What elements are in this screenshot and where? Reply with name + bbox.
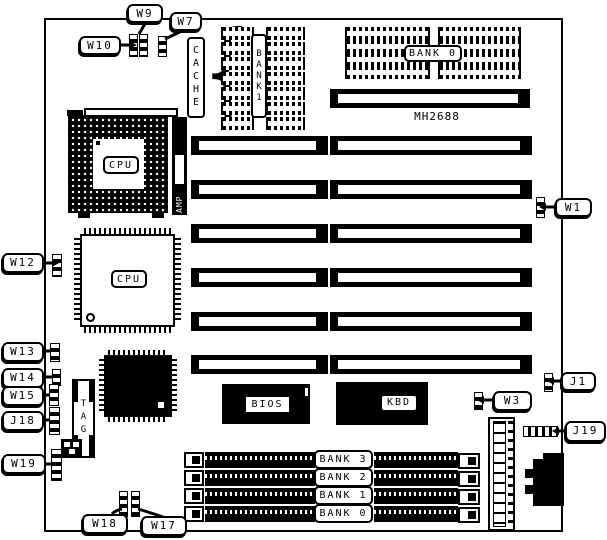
kbd-chip: KBD: [336, 382, 428, 425]
header-cell: [73, 442, 79, 447]
jumper-w3: [474, 392, 483, 410]
simm-slot-bar: [205, 506, 315, 522]
qfp-pins-bottom: [84, 327, 171, 333]
header-cell: [69, 449, 75, 454]
simm-clip: [184, 506, 204, 522]
jumper-w1: [536, 197, 545, 218]
simm-slot-bar: [374, 452, 458, 468]
pga-foot: [152, 213, 164, 218]
chipset-pins-right: [172, 359, 177, 413]
isa-slot: [330, 180, 532, 199]
simm-slot-bar: [205, 488, 315, 504]
simm-bank-label: BANK 1: [314, 486, 373, 505]
chipset-pin1-mark: [158, 402, 164, 408]
cache-bank1-label: BANK1: [251, 34, 267, 118]
simm-slot-bar: [205, 470, 315, 486]
dram-chip: [438, 27, 521, 40]
isa-slot: [330, 89, 530, 108]
jumper-w9-w10-a: [129, 34, 138, 57]
dram-chip: [345, 27, 430, 40]
power-pin-column: [508, 421, 513, 527]
kbd-label: KBD: [381, 395, 417, 411]
dram-chip: [438, 66, 521, 79]
dram-chip: [345, 66, 430, 79]
cache-chip: [266, 117, 305, 130]
power-connector: [488, 417, 515, 531]
callout-w13: W13: [2, 342, 44, 362]
isa-slot: [191, 268, 328, 287]
isa-slot: [330, 224, 532, 243]
din-keyboard-tab: [525, 469, 533, 478]
cache-chip: [266, 72, 305, 85]
jumper-w12: [52, 254, 62, 277]
pga-foot: [78, 213, 90, 218]
amp-connector: AMP: [172, 117, 187, 215]
simm-slot-bar: [205, 452, 315, 468]
isa-slot: [330, 268, 532, 287]
simm-clip: [184, 470, 204, 486]
cache-chip: [266, 57, 305, 70]
qfp-pin1-circle: [86, 313, 95, 322]
cpu-socket-label: CPU: [103, 156, 139, 174]
callout-w17: W17: [141, 516, 187, 536]
cpu-qfp-label: CPU: [111, 270, 147, 288]
callout-j18: J18: [2, 411, 44, 431]
bios-label: BIOS: [246, 397, 289, 412]
din-keyboard-tab: [525, 485, 533, 494]
simm-clip: [458, 471, 480, 487]
cache-chip: [266, 87, 305, 100]
callout-w14: W14: [2, 368, 44, 388]
simm-bank-label: BANK 2: [314, 468, 373, 487]
cache-chip: [221, 117, 254, 130]
isa-slot: [191, 136, 328, 155]
cache-brace: {: [203, 16, 220, 128]
cache-chip: [266, 42, 305, 55]
callout-w3: W3: [493, 391, 532, 411]
jumper-w9-w10-b: [139, 34, 148, 57]
cache-chip: [266, 27, 305, 40]
isa-slot: [191, 312, 328, 331]
callout-w10: W10: [79, 36, 121, 55]
cache-chip: [266, 102, 305, 115]
isa-slot: [191, 355, 328, 374]
jumper-j1: [544, 373, 553, 392]
callout-w18: W18: [82, 514, 128, 534]
isa-slot: [330, 355, 532, 374]
jumper-w13: [50, 343, 60, 362]
chipset-qfp: [104, 355, 172, 417]
cache-chip: [221, 42, 254, 55]
jumper-w7: [158, 36, 167, 57]
cache-chip: [221, 87, 254, 100]
motherboard-diagram: CACHE { BANK1 BANK 0 MH2688 CPU: [0, 0, 607, 540]
cache-label: CACHE: [187, 37, 205, 118]
cpu-pin1-mark: [96, 141, 100, 145]
header-j19: [523, 426, 558, 437]
simm-slot-bar: [374, 506, 458, 522]
simm-bank-label: BANK 3: [314, 450, 373, 469]
callout-w1: W1: [555, 198, 592, 217]
jumper-w17: [131, 491, 140, 517]
small-header-block: [61, 439, 82, 458]
simm-slot-bar: [374, 470, 458, 486]
callout-w15: W15: [2, 386, 44, 406]
simm-clip: [184, 452, 204, 468]
bios-notch: [305, 388, 308, 396]
bios-chip: BIOS: [222, 384, 310, 424]
jumper-w15: [49, 384, 59, 406]
simm-clip: [458, 507, 480, 523]
chipset-pins-bottom: [108, 417, 168, 422]
amp-connector-label: AMP: [175, 183, 185, 213]
cache-chip: [221, 102, 254, 115]
callout-w19: W19: [2, 454, 46, 474]
callout-w7: W7: [170, 12, 202, 31]
jumper-w19: [51, 449, 62, 481]
simm-clip: [458, 489, 480, 505]
din-keyboard-connector: [533, 459, 564, 506]
top-bank0-label: BANK 0: [404, 45, 462, 62]
cache-chip: [221, 72, 254, 85]
din-keyboard-step: [543, 453, 564, 461]
callout-w12: W12: [2, 253, 44, 273]
cache-chip: [221, 57, 254, 70]
power-pin-column: [493, 421, 506, 527]
simm-clip: [458, 453, 480, 469]
isa-slot: [191, 180, 328, 199]
simm-bank-label: BANK 0: [314, 504, 373, 523]
qfp-pins-right: [175, 238, 181, 323]
callout-j1: J1: [561, 372, 596, 391]
isa-slot: [330, 312, 532, 331]
callout-w9: W9: [127, 4, 163, 23]
simm-slot-bar: [374, 488, 458, 504]
cache-chip: [221, 27, 254, 40]
header-cell: [64, 442, 70, 447]
simm-clip: [184, 488, 204, 504]
isa-slot: [330, 136, 532, 155]
jumper-j18: [49, 407, 60, 435]
amp-connector-slot: [175, 155, 184, 184]
board-model: MH2688: [402, 110, 472, 123]
isa-slot: [191, 224, 328, 243]
callout-j19: J19: [565, 421, 606, 442]
